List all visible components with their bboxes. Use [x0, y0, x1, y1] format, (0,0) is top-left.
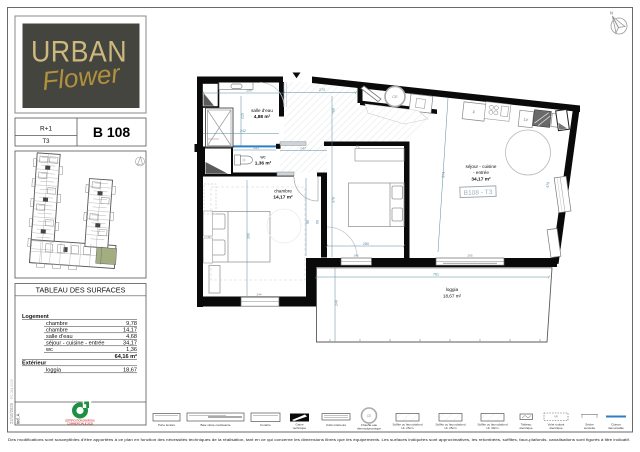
svg-text:démontable: démontable [608, 426, 624, 430]
svg-text:190: 190 [246, 89, 252, 93]
svg-text:thermodynamique: thermodynamique [357, 427, 381, 431]
svg-text:60: 60 [316, 220, 320, 224]
svg-text:147: 147 [300, 146, 306, 150]
svg-text:Des modifications sont suscept: Des modifications sont susceptibles d'êt… [8, 438, 630, 442]
svg-text:295: 295 [467, 254, 472, 258]
svg-text:CE: CE [392, 94, 398, 99]
svg-text:786: 786 [332, 108, 336, 114]
svg-text:146: 146 [353, 254, 358, 258]
svg-text:360: 360 [247, 233, 251, 239]
svg-text:T3: T3 [42, 139, 50, 145]
svg-text:COMMERCIALE 2025: COMMERCIALE 2025 [67, 421, 93, 425]
svg-text:273: 273 [319, 88, 325, 92]
svg-text:électrique: électrique [519, 426, 532, 430]
svg-text:LV: LV [523, 117, 528, 123]
svg-text:technique: technique [293, 426, 306, 430]
svg-text:Unité intérieure: Unité intérieure [326, 423, 347, 427]
svg-text:1,36 m²: 1,36 m² [255, 161, 272, 167]
svg-text:90: 90 [306, 220, 310, 224]
svg-text:électrique: électrique [549, 426, 562, 430]
svg-text:18,67 m²: 18,67 m² [443, 294, 462, 299]
svg-text:salle d'eau: salle d'eau [251, 108, 273, 113]
svg-text:R+1: R+1 [40, 126, 52, 133]
svg-text:Porte fenêtre: Porte fenêtre [158, 423, 176, 427]
svg-text:loggia: loggia [446, 287, 459, 292]
svg-text:TABLEAU DES SURFACES: TABLEAU DES SURFACES [36, 286, 126, 295]
svg-text:761: 761 [433, 273, 439, 277]
svg-text:CE: CE [367, 414, 371, 418]
svg-text:14,17 m²: 14,17 m² [273, 195, 293, 201]
svg-text:Ht. 25cm: Ht. 25cm [444, 426, 457, 430]
svg-text:244: 244 [256, 293, 261, 297]
svg-text:N: N [610, 11, 613, 16]
svg-text:Fenêtre: Fenêtre [260, 423, 271, 427]
svg-text:34,17 m²: 34,17 m² [471, 177, 491, 183]
svg-text:242: 242 [240, 129, 246, 133]
svg-text:PC 064.2025: PC 064.2025 [10, 379, 14, 399]
svg-text:PL: PL [356, 145, 360, 149]
svg-text:B 108: B 108 [93, 124, 131, 140]
svg-text:215: 215 [241, 113, 245, 119]
svg-text:374: 374 [441, 172, 445, 178]
svg-text:serviette: serviette [584, 426, 596, 430]
svg-text:Ht. 25cm: Ht. 25cm [401, 426, 414, 430]
svg-text:64,16 m²: 64,16 m² [115, 353, 138, 360]
svg-text:VR: VR [554, 415, 558, 419]
svg-text:séjour - cuisine: séjour - cuisine [466, 164, 497, 169]
svg-text:4,88 m²: 4,88 m² [254, 114, 271, 120]
svg-text:Ht. 30cm: Ht. 30cm [486, 426, 499, 430]
svg-text:chambre: chambre [274, 189, 292, 194]
svg-text:ind. A: ind. A [16, 413, 21, 424]
svg-text:22/10/2025: 22/10/2025 [9, 402, 14, 424]
svg-text:wc: wc [260, 155, 266, 160]
svg-text:Baie vitrée coulissante: Baie vitrée coulissante [200, 423, 230, 427]
svg-text:- entrée: - entrée [473, 170, 489, 175]
svg-text:131: 131 [253, 146, 259, 150]
svg-text:280: 280 [363, 242, 369, 246]
svg-text:478: 478 [546, 182, 551, 188]
svg-text:B108 - T3: B108 - T3 [463, 189, 492, 197]
svg-text:240: 240 [335, 300, 339, 306]
svg-text:378: 378 [332, 197, 336, 203]
